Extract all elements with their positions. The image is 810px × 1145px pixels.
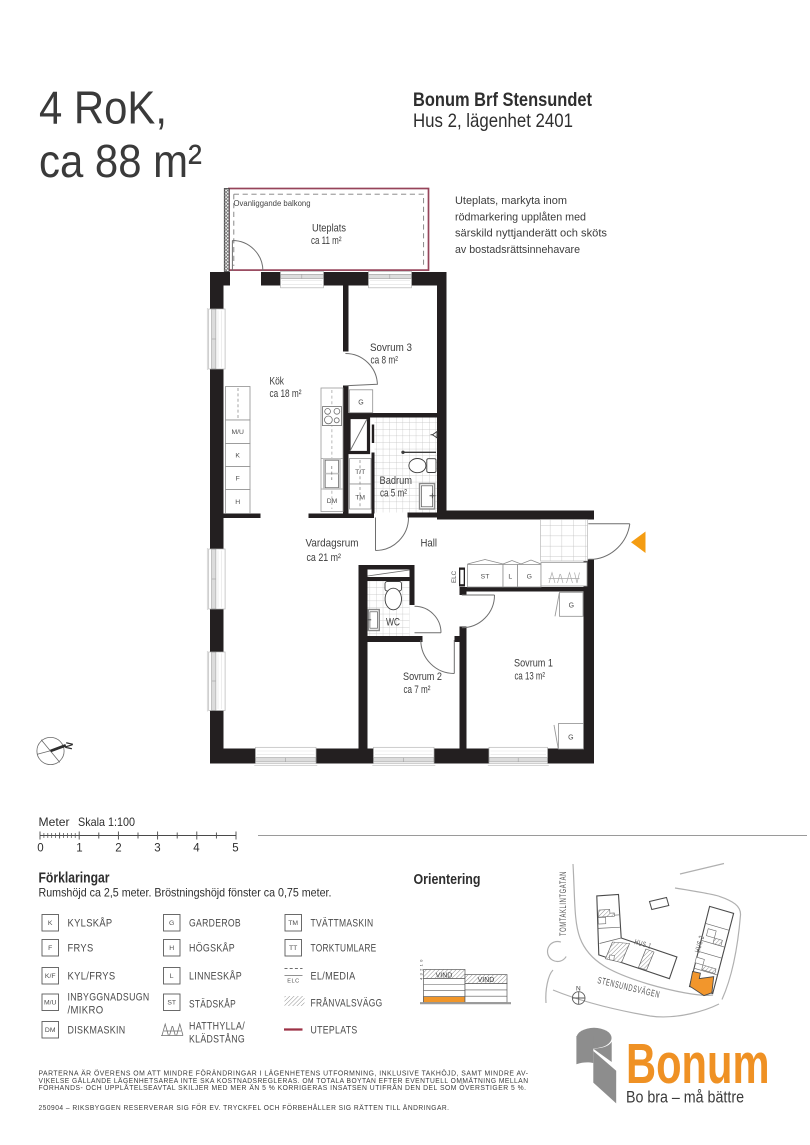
svg-text:Bo bra – må bättre: Bo bra – må bättre (626, 1088, 744, 1107)
svg-text:250904 – RIKSBYGGEN RESERVERAR: 250904 – RIKSBYGGEN RESERVERAR SIG FÖR E… (39, 1103, 450, 1112)
svg-text:/MIKRO: /MIKRO (68, 1005, 104, 1017)
svg-text:LINNESKÅP: LINNESKÅP (189, 970, 242, 983)
svg-text:T/T: T/T (355, 469, 365, 476)
svg-text:Förklaringar: Förklaringar (39, 871, 110, 887)
svg-text:4: 4 (193, 843, 200, 855)
svg-text:Bonum Brf Stensundet: Bonum Brf Stensundet (413, 89, 592, 111)
svg-text:Rumshöjd ca 2,5 meter. Bröstni: Rumshöjd ca 2,5 meter. Bröstningshöjd fö… (39, 887, 332, 900)
svg-text:ST: ST (167, 1000, 176, 1007)
svg-text:TT: TT (289, 945, 297, 952)
svg-text:ca 8 m²: ca 8 m² (371, 355, 399, 367)
svg-text:ELC: ELC (451, 570, 458, 583)
svg-text:särskild nyttjanderätt och skö: särskild nyttjanderätt och sköts (455, 228, 607, 240)
svg-text:TVÄTTMASKIN: TVÄTTMASKIN (311, 918, 374, 930)
svg-text:KLÄDSTÅNG: KLÄDSTÅNG (189, 1033, 245, 1046)
svg-text:1: 1 (76, 843, 82, 855)
svg-text:HATTHYLLA/: HATTHYLLA/ (189, 1021, 245, 1033)
svg-text:TORKTUMLARE: TORKTUMLARE (311, 943, 377, 955)
svg-text:F: F (48, 945, 52, 952)
svg-text:K: K (48, 920, 53, 927)
svg-text:Skala 1:100: Skala 1:100 (78, 815, 135, 829)
svg-text:INBYGGNADSUGN: INBYGGNADSUGN (68, 992, 150, 1004)
svg-text:Meter: Meter (39, 815, 70, 829)
svg-text:TOMTAKLINTGATAN: TOMTAKLINTGATAN (558, 871, 569, 936)
svg-text:Kök: Kök (270, 376, 285, 388)
svg-text:EL/MEDIA: EL/MEDIA (311, 971, 356, 983)
svg-text:G: G (568, 735, 573, 742)
svg-text:L: L (508, 574, 512, 581)
svg-text:STÄDSKÅP: STÄDSKÅP (189, 998, 236, 1011)
svg-text:H: H (169, 945, 174, 952)
svg-text:3: 3 (154, 843, 160, 855)
svg-text:2: 2 (115, 843, 121, 855)
svg-text:TM: TM (288, 920, 298, 927)
svg-text:Badrum: Badrum (380, 475, 413, 487)
svg-text:0: 0 (37, 843, 43, 855)
svg-text:M/U: M/U (231, 429, 244, 436)
svg-text:FÖRHANDS- OCH UPPLÅTELSEAVTAL: FÖRHANDS- OCH UPPLÅTELSEAVTAL SKILJER ME… (39, 1083, 527, 1092)
svg-text:WC: WC (386, 617, 400, 629)
svg-text:KYL/FRYS: KYL/FRYS (68, 971, 116, 983)
svg-text:GARDEROB: GARDEROB (189, 918, 241, 930)
svg-text:Hall: Hall (421, 538, 438, 550)
svg-text:ca 21 m²: ca 21 m² (307, 552, 342, 564)
svg-text:G: G (569, 603, 574, 610)
svg-text:DISKMASKIN: DISKMASKIN (68, 1025, 126, 1037)
svg-text:FRYS: FRYS (68, 943, 94, 955)
svg-text:Orientering: Orientering (414, 872, 481, 888)
svg-text:Sovrum 3: Sovrum 3 (370, 342, 412, 354)
svg-text:G: G (527, 574, 532, 581)
svg-text:Bonum: Bonum (626, 1032, 770, 1096)
svg-text:PARTERNA ÄR ÖVERENS OM ATT MIN: PARTERNA ÄR ÖVERENS OM ATT MINDRE FÖRÄND… (39, 1070, 529, 1078)
svg-text:Uteplats: Uteplats (312, 223, 346, 235)
svg-text:ca 18 m²: ca 18 m² (270, 388, 302, 400)
svg-text:TM: TM (355, 495, 365, 502)
svg-text:av bostadsrättsinnehavare: av bostadsrättsinnehavare (455, 244, 580, 256)
svg-text:ca 13 m²: ca 13 m² (515, 671, 546, 683)
svg-text:L: L (170, 973, 174, 980)
svg-text:G: G (169, 920, 174, 927)
svg-text:DM: DM (45, 1027, 56, 1034)
svg-text:rödmarkering upplåten med: rödmarkering upplåten med (455, 211, 586, 223)
svg-text:ca 5 m²: ca 5 m² (380, 488, 407, 500)
svg-text:VIND: VIND (478, 977, 495, 984)
svg-text:Hus 2, lägenhet 2401: Hus 2, lägenhet 2401 (413, 110, 573, 132)
svg-text:K/F: K/F (45, 973, 56, 980)
svg-text:4 RoK,: 4 RoK, (39, 82, 167, 134)
svg-text:ELC: ELC (287, 979, 299, 985)
svg-text:G: G (358, 400, 363, 407)
svg-text:Sovrum 1: Sovrum 1 (514, 658, 553, 670)
svg-text:N: N (576, 986, 581, 993)
svg-text:Uteplats, markyta inom: Uteplats, markyta inom (455, 195, 567, 207)
svg-text:ca 7 m²: ca 7 m² (404, 684, 431, 696)
svg-text:Sovrum 2: Sovrum 2 (403, 671, 442, 683)
svg-text:HÖGSKÅP: HÖGSKÅP (189, 942, 235, 955)
svg-text:KYLSKÅP: KYLSKÅP (68, 917, 113, 930)
svg-text:K: K (235, 453, 240, 460)
svg-text:DM: DM (327, 498, 338, 505)
svg-text:H: H (235, 499, 240, 506)
svg-text:ca 11 m²: ca 11 m² (311, 235, 342, 247)
svg-text:FRÅNVALSVÄGG: FRÅNVALSVÄGG (311, 997, 383, 1010)
svg-text:VIND: VIND (436, 973, 453, 980)
svg-text:F: F (236, 476, 240, 483)
svg-text:UTEPLATS: UTEPLATS (311, 1025, 358, 1037)
svg-text:VIKELSE GÄLLANDE LÄGENHETSAREA: VIKELSE GÄLLANDE LÄGENHETSAREA INTE SKA … (39, 1077, 529, 1085)
svg-text:Ovanliggande balkong: Ovanliggande balkong (234, 199, 311, 208)
svg-text:ca 88 m²: ca 88 m² (39, 135, 202, 187)
svg-text:ST: ST (481, 574, 490, 581)
svg-text:M/U: M/U (44, 1000, 57, 1007)
svg-text:Vardagsrum: Vardagsrum (306, 538, 359, 550)
svg-text:5: 5 (232, 843, 238, 855)
svg-text:4 3 2 1 0: 4 3 2 1 0 (419, 959, 424, 980)
